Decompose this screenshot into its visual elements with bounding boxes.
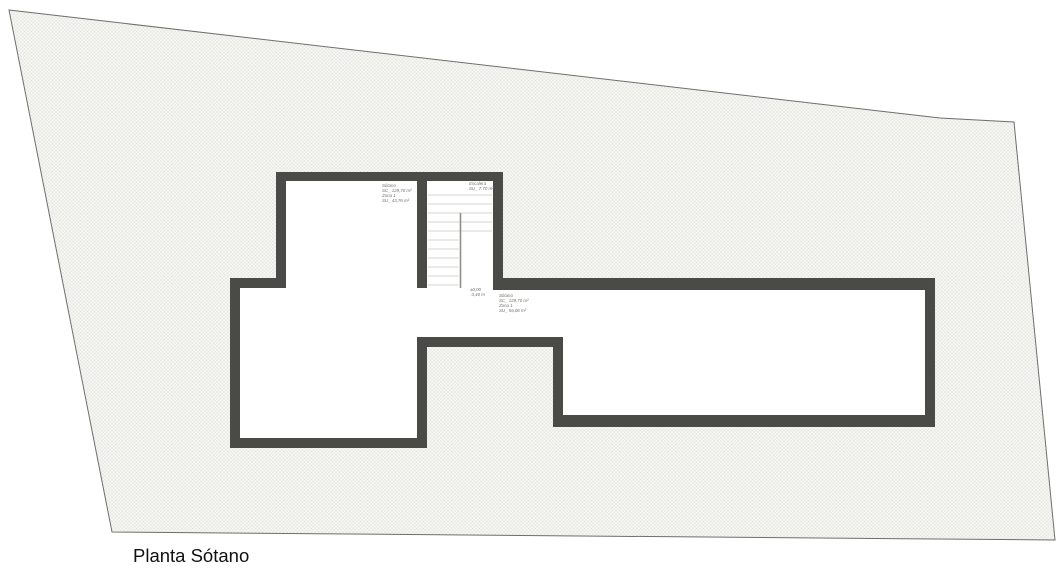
wall-notch-left <box>417 337 427 448</box>
floorplan-page: Sótano SC_ 129,70 m² Zona 1 SU_ 43,76 m²… <box>0 0 1062 576</box>
floorplan-drawing: Sótano SC_ 129,70 m² Zona 1 SU_ 43,76 m²… <box>0 0 1062 576</box>
wall-notch-top <box>417 337 563 347</box>
site-boundary-hatch <box>9 10 1055 540</box>
plan-title: Planta Sótano <box>133 545 249 566</box>
wall-leftblock-bottom <box>230 438 427 448</box>
wall-notch-right <box>553 337 563 427</box>
wall-wing-top <box>493 278 935 290</box>
wall-wing-bottom <box>553 415 935 427</box>
wall-upper-top <box>276 172 503 181</box>
wall-stair-right <box>493 172 503 290</box>
wall-upper-left <box>276 172 286 288</box>
wall-leftblock-left <box>230 278 240 448</box>
wall-wing-right <box>925 278 935 427</box>
wall-upper-middle <box>417 172 427 288</box>
